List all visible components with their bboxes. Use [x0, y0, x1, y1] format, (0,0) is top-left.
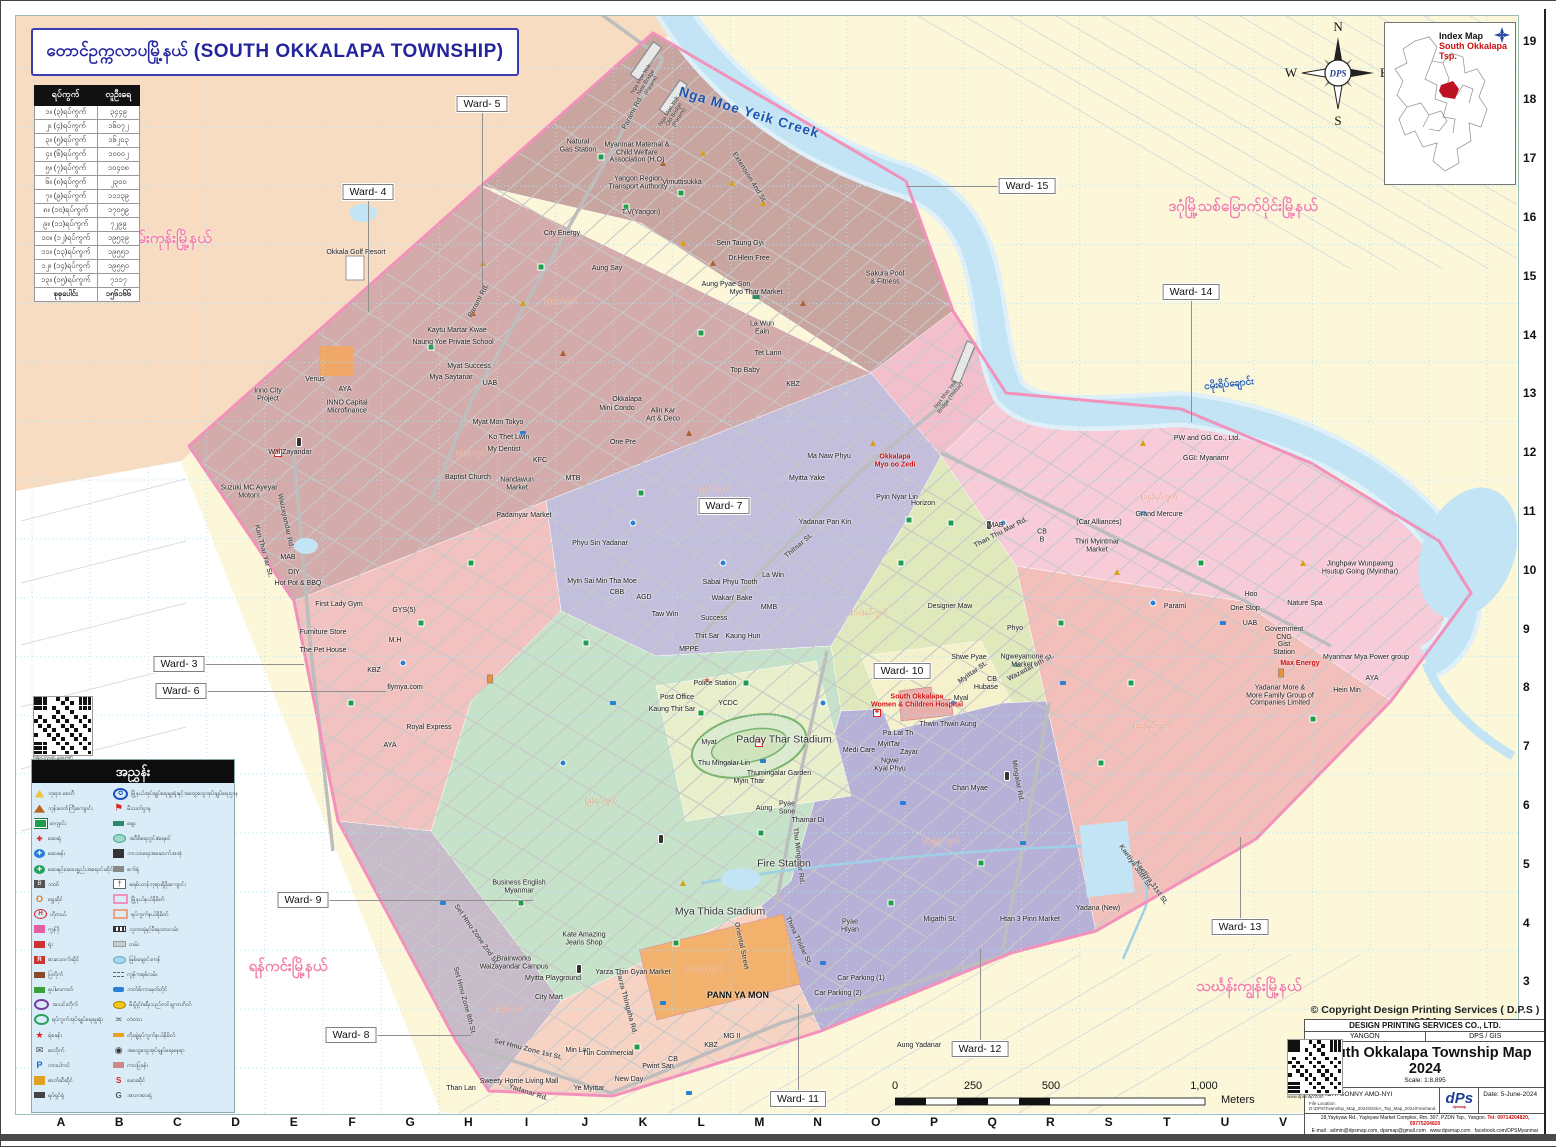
legend-item: Pကားပါကင် — [34, 1058, 113, 1073]
grid-column-label: H — [464, 1115, 473, 1129]
compass-n: N — [1333, 19, 1343, 34]
ward-label: Ward- 6 — [156, 683, 207, 699]
pagoda-marker-icon — [700, 150, 706, 156]
grid-column-label: O — [871, 1115, 880, 1129]
pagoda-marker-icon — [1114, 569, 1120, 575]
legend-item: ဈေး — [113, 816, 238, 831]
legend-item: ✪မြို့နယ်အုပ်ချုပ်ရေးမှူးရုံးနှင့်အထွေထွ… — [113, 786, 238, 801]
ward-leader — [1191, 292, 1192, 422]
market-marker-icon — [1014, 663, 1021, 667]
grid-row-label: 14 — [1523, 328, 1536, 342]
school-marker-icon — [428, 344, 435, 351]
ward-leader — [1240, 837, 1241, 927]
bus-marker-icon — [610, 701, 616, 705]
drug-store-icon: S — [113, 1075, 124, 1085]
car-park-icon: P — [34, 1060, 45, 1070]
legend-item: မြစ်၊ချောင်း၊ကန် — [113, 952, 238, 967]
legend-item: ကွန်ကရစ်လမ်း — [113, 967, 238, 982]
legend-item-label: စက်ရုံ — [127, 865, 139, 874]
school-marker-icon — [743, 680, 750, 687]
legend-item: Gအားကစားရုံ — [113, 1088, 238, 1103]
grid-column-label: L — [698, 1115, 705, 1129]
bank-icon: B — [34, 880, 45, 888]
ward-table-row: ၅။ (၇)ရပ်ကွက်၁၀၄၀၈ — [35, 162, 140, 176]
sheet-bottom-rule — [1, 1134, 1556, 1141]
legend-item-label: ရုပ်ရှင်ရုံ — [48, 1091, 64, 1100]
ward-label: Ward- 11 — [770, 1091, 826, 1107]
legend-item-label: မြစ်၊ချောင်း၊ကန် — [129, 955, 160, 964]
legend-column-left: ဘုရား၊ စေတီဘုန်းတော်ကြီးကျောင်းကျောင်း✚ဆ… — [34, 786, 113, 1103]
scale-tick: 1,000 — [1190, 1080, 1218, 1092]
ward-leader — [303, 900, 533, 901]
condo-icon — [34, 925, 45, 933]
grid-row-label: 8 — [1523, 680, 1530, 694]
legend-item-label: ခရစ်ယာန်ဘုရားရှိခိုးကျောင်း — [129, 880, 185, 889]
legend-item-label: ကျောင်း — [50, 819, 66, 828]
clinic-marker-icon — [720, 560, 727, 567]
legend-item: ကွန်ဒို — [34, 922, 113, 937]
legend-item-label: ရပ်ကွက်အုပ်ချုပ်ရေးမှူးရုံး — [52, 1015, 103, 1024]
legend-item-label: ဟိုတယ် — [50, 910, 66, 919]
fuel-icon — [34, 1076, 45, 1085]
legend-item-label: ရပ်ကွက်နယ်နိမိတ် — [131, 910, 168, 919]
grid-row-label: 7 — [1523, 739, 1530, 753]
index-map: Index Map South OkkalapaTsp. — [1384, 22, 1516, 185]
traffic-light-icon — [113, 1001, 126, 1009]
tl-marker-icon — [577, 965, 581, 973]
restaurant-icon: R — [34, 956, 45, 964]
legend-item-label: ကားပြခန်း — [127, 1061, 148, 1070]
index-map-subtitle: South OkkalapaTsp. — [1439, 42, 1507, 62]
school-marker-icon — [698, 330, 705, 337]
legend-item-label: ဘာသာရေးအဆောက်အအုံ — [127, 849, 181, 858]
grid-row-label: 9 — [1523, 622, 1530, 636]
ward-table-row: ၁၀။ (၁၂)ရပ်ကွက်၁၉၅၃၉ — [35, 232, 140, 246]
bus-stop-icon — [113, 987, 124, 992]
supermarket-icon — [34, 987, 45, 993]
grid-column-label: D — [231, 1115, 240, 1129]
publish-date: Date: 5-June-2024 — [1481, 1089, 1543, 1100]
ward-table-row: ၉။ (၁၁)ရပ်ကွက်၇၂၉၉ — [35, 218, 140, 232]
legend-item: †ခရစ်ယာန်ဘုရားရှိခိုးကျောင်း — [113, 877, 238, 892]
ward-table-total-row: စုစုပေါင်း၁၅၆၁၆၆ — [35, 288, 140, 302]
pagoda-marker-icon — [480, 260, 486, 266]
ward-table-body: ၁။ (၃)ရပ်ကွက်၃၄၄၉၂။ (၄)ရပ်ကွက်၁၆၀၇၂၃။ (၅… — [35, 106, 140, 302]
grid-row-label: 4 — [1523, 916, 1530, 930]
dps-logo: dPsdpsmap — [1446, 1091, 1474, 1110]
grid-column-label: M — [754, 1115, 764, 1129]
sheet-right-rule — [1544, 9, 1546, 1134]
legend-item: ★ရဲစခန်း — [34, 1028, 113, 1043]
legend-item-label: အဝီစိရေတွင်း/ရေစင် — [129, 834, 171, 843]
monastery-icon — [34, 805, 45, 813]
cinema-icon — [34, 1092, 45, 1098]
legend-item-label: အသင်းတိုက် — [52, 1000, 78, 1009]
grid-column-label: A — [57, 1115, 66, 1129]
pagoda-marker-icon — [680, 240, 686, 246]
bus-marker-icon — [520, 431, 526, 435]
legend-item: မီးပွိုင့်/ခရီးသည်တင်ချကားဂိတ် — [113, 997, 238, 1012]
ward-table-row: ၄။ (၆)ရပ်ကွက်၁၀၀၀၂ — [35, 148, 140, 162]
monastery-marker-icon — [660, 160, 666, 166]
ward-leader — [482, 104, 483, 289]
legend-item-label: ဘုန်းတော်ကြီးကျောင်း — [48, 804, 93, 813]
grid-column-label: G — [406, 1115, 415, 1129]
monastery-marker-icon — [710, 260, 716, 266]
legend-item: ဘုန်းတော်ကြီးကျောင်း — [34, 801, 113, 816]
grid-row-label: 13 — [1523, 386, 1536, 400]
clinic-icon: ✚ — [34, 849, 45, 858]
legend-item: ဓာတ်ဆီဆိုင် — [34, 1073, 113, 1088]
hospital-marker-icon: ✚ — [755, 739, 763, 747]
school-marker-icon — [348, 700, 355, 707]
legend-item-label: ကွန်ဒို — [48, 925, 59, 934]
legend-item: မြို့နယ်နယ်နိမိတ် — [113, 892, 238, 907]
ward-label: Ward- 3 — [154, 656, 205, 672]
school-marker-icon — [598, 154, 605, 161]
legend-item: ဘုရား၊ စေတီ — [34, 786, 113, 801]
bus-marker-icon — [686, 1091, 692, 1095]
school-marker-icon — [1098, 760, 1105, 767]
legend-item-label: ဆေးဆိုင် — [127, 1076, 145, 1085]
fuel-marker-icon — [487, 675, 493, 684]
fire-station-icon: ⚑ — [113, 804, 124, 814]
pagoda-marker-icon — [520, 300, 526, 306]
landmark-icon: ◉ — [113, 1045, 124, 1055]
hospital-icon: ✚ — [34, 834, 45, 844]
scale-tick: 0 — [892, 1080, 898, 1092]
legend-item: ရုံး — [34, 937, 113, 952]
school-marker-icon — [673, 940, 680, 947]
index-map-title: Index Map — [1439, 31, 1483, 41]
legend-item-label: ဆေးနှင့်ဆေးပစ္စည်းအရောင်းဆိုင် — [48, 865, 113, 874]
legend-item: ရုပ်ရှင်ရုံ — [34, 1088, 113, 1103]
grid-column-label: C — [173, 1115, 182, 1129]
pagoda-marker-icon — [729, 180, 735, 186]
ward-table-row: ၁၂။ (၁၄)ရပ်ကွက်၁၉၅၅၀ — [35, 260, 140, 274]
legend-item-label: အားကစားရုံ — [127, 1091, 151, 1100]
monastery-marker-icon — [560, 350, 566, 356]
railway-icon — [113, 926, 126, 932]
population-col-header: လူဦးရေ — [97, 86, 140, 106]
legend-item: စူပါမားကတ် — [34, 982, 113, 997]
legend-item: Sဆေးဆိုင် — [113, 1073, 238, 1088]
legend-item-label: ဈေး — [127, 819, 135, 828]
ward-table-row: ၃။ (၅)ရပ်ကွက်၁၆၂၀၃ — [35, 134, 140, 148]
school-marker-icon — [978, 860, 985, 867]
embankment-icon — [113, 1033, 124, 1037]
legend-item: ဘူတာရုံနှင့်မီးရထားလမ်း — [113, 922, 238, 937]
bus-marker-icon — [900, 801, 906, 805]
grid-column-label: T — [1163, 1115, 1170, 1129]
grid-column-label: R — [1046, 1115, 1055, 1129]
legend-item-label: မီးသတ်ဌာန — [127, 804, 151, 813]
clinic-marker-icon — [630, 520, 637, 527]
legend-item-label: ပြတိုက် — [48, 970, 63, 979]
hospital-marker-icon: ✚ — [274, 449, 282, 457]
ward-office-icon — [34, 1014, 49, 1025]
ward-label: Ward- 15 — [999, 178, 1056, 194]
museum-icon — [34, 972, 45, 978]
legend-item-label: ဘုရား၊ စေတီ — [48, 789, 74, 798]
ward-table-row: ၆။ (၈)ရပ်ကွက်၂၃၀၀ — [35, 176, 140, 190]
monastery-marker-icon — [800, 300, 806, 306]
ward-table-row: ၈။ (၁၀)ရပ်ကွက်၁၇၀၅၉ — [35, 204, 140, 218]
legend-item: ရပ်ကွက်အုပ်ချုပ်ရေးမှူးရုံး — [34, 1012, 113, 1027]
legend-item-label: စာတိုက် — [48, 1046, 64, 1055]
legend-column-right: ✪မြို့နယ်အုပ်ချုပ်ရေးမှူးရုံးနှင့်အထွေထွ… — [113, 786, 238, 1103]
religious-icon — [113, 849, 124, 858]
grid-column-label: S — [1105, 1115, 1113, 1129]
tl-marker-icon — [987, 521, 991, 529]
scale-tick: 500 — [1042, 1080, 1060, 1092]
township-boundary-icon — [113, 894, 128, 904]
grid-column-label: Q — [988, 1115, 997, 1129]
pagoda-icon — [34, 790, 45, 798]
legend-item-label: ဆေးရုံ — [48, 834, 61, 843]
legend-item: Oရွှေဆိုင် — [34, 892, 113, 907]
publisher-name: DESIGN PRINTING SERVICES CO., LTD. — [1305, 1020, 1545, 1031]
school-marker-icon — [1310, 716, 1317, 723]
clinic-marker-icon — [1150, 600, 1157, 607]
legend-item-label: မြို့နယ်နယ်နိမိတ် — [131, 895, 164, 904]
clinic-marker-icon — [950, 700, 957, 707]
post-office-icon: ✉ — [34, 1045, 45, 1055]
school-marker-icon — [758, 830, 765, 837]
qr-code-right — [1287, 1039, 1343, 1095]
monastery-marker-icon — [686, 430, 692, 436]
pharmacy-icon: ✚ — [34, 865, 45, 874]
clinic-marker-icon — [560, 760, 567, 767]
legend-item-label: အထွေထွေအုပ်ချုပ်ရေးနေရာ — [127, 1046, 185, 1055]
grid-row-label: 3 — [1523, 974, 1530, 988]
gym-icon: G — [113, 1090, 124, 1100]
bus-marker-icon — [440, 901, 446, 905]
tl-marker-icon — [1005, 772, 1009, 780]
school-marker-icon — [698, 710, 705, 717]
grid-row-label: 15 — [1523, 269, 1536, 283]
index-map-highlight — [1439, 81, 1459, 99]
market-marker-icon — [753, 295, 760, 299]
legend-title: အညွှန်း — [32, 760, 234, 783]
legend-item: ဘာသာရေးအဆောက်အအုံ — [113, 846, 238, 861]
legend-item-label: ဓာတ်ဆီဆိုင် — [48, 1076, 73, 1085]
publisher-contact: 18,Yaykyaw Rd., Yaykyaw Market Complex, … — [1305, 1114, 1545, 1135]
ward-leader — [980, 949, 981, 1049]
market-icon — [113, 821, 124, 826]
grid-row-label: 18 — [1523, 92, 1536, 106]
school-marker-icon — [634, 1044, 641, 1051]
legend-item: ကားပြခန်း — [113, 1058, 238, 1073]
car-showroom-icon — [113, 1062, 124, 1068]
pagoda-marker-icon — [680, 880, 686, 886]
bus-marker-icon — [1220, 621, 1226, 625]
legend-item: ကျောင်း — [34, 816, 113, 831]
pagoda-marker-icon — [1300, 560, 1306, 566]
school-marker-icon — [583, 640, 590, 647]
pagoda-marker-icon — [870, 440, 876, 446]
file-location: File Location: D:\DPS\Township_Map_2024\… — [1307, 1100, 1437, 1112]
legend-item: အဝီစိရေတွင်း/ရေစင် — [113, 831, 238, 846]
legend-item-label: တံတား — [127, 1015, 142, 1024]
bridge-icon: ≍ — [113, 1015, 124, 1025]
ward-table-row: ၇။ (၉)ရပ်ကွက်၁၁၁၃၉ — [35, 190, 140, 204]
ward-label: Ward- 4 — [343, 184, 394, 200]
legend-item: ≍တံတား — [113, 1012, 238, 1027]
bus-marker-icon — [760, 759, 766, 763]
dirt-road-icon — [113, 972, 124, 977]
school-marker-icon — [623, 204, 630, 211]
school-marker-icon — [638, 490, 645, 497]
grid-row-label: 16 — [1523, 210, 1536, 224]
ward-boundary-icon — [113, 909, 128, 919]
map-title-box: တောင်ဥက္ကလာပမြို့နယ် (SOUTH OKKALAPA TOW… — [31, 28, 519, 76]
legend-item: Rစားသောက်ဆိုင် — [34, 952, 113, 967]
grid-column-label: I — [525, 1115, 528, 1129]
legend-item: ပြတိုက် — [34, 967, 113, 982]
pagoda-marker-icon — [1140, 440, 1146, 446]
grid-row-label: 19 — [1523, 34, 1536, 48]
ward-table-row: ၁၃။ (၁၅)ရပ်ကွက်၇၁၁၇ — [35, 274, 140, 288]
school-marker-icon — [538, 264, 545, 271]
ward-leader — [368, 192, 369, 312]
map-sheet: DPS N S W E တောင်ဥက္ကလာပမြို့နယ် (SOUTH … — [0, 0, 1556, 1147]
legend-item: Hဟိုတယ် — [34, 907, 113, 922]
legend-item-label: ဘူတာရုံနှင့်မီးရထားလမ်း — [129, 925, 178, 934]
grid-column-label: E — [290, 1115, 298, 1129]
ward-leader — [798, 1004, 799, 1099]
water-tower-icon — [113, 834, 126, 843]
legend-item: ✚ဆေးနှင့်ဆေးပစ္စည်းအရောင်းဆိုင် — [34, 861, 113, 876]
water-body-icon — [113, 956, 126, 964]
grid-column-label: K — [639, 1115, 648, 1129]
police-icon: ★ — [34, 1030, 45, 1040]
tl-marker-icon — [297, 438, 301, 446]
legend-item: လမ်း — [113, 937, 238, 952]
scale-units: Meters — [1221, 1094, 1255, 1106]
ward-table-row: ၁၁။ (၁၃)ရပ်ကွက်၁၉၅၅၁ — [35, 246, 140, 260]
school-marker-icon — [468, 560, 475, 567]
legend-item: ✚ဆေးခန်း — [34, 846, 113, 861]
scale-bar: 02505001,000 Meters — [871, 1076, 1271, 1116]
gold-shop-icon: O — [34, 894, 45, 904]
legend-item-label: ဘဏ် — [48, 880, 59, 889]
ward-population-table: ရပ်ကွက် လူဦးရေ ၁။ (၃)ရပ်ကွက်၃၄၄၉၂။ (၄)ရပ… — [34, 85, 140, 302]
clinic-marker-icon — [820, 700, 827, 707]
school-marker-icon — [1198, 560, 1205, 567]
legend-item-label: မီးပွိုင့်/ခရီးသည်တင်ချကားဂိတ် — [129, 1000, 191, 1009]
school-marker-icon — [1058, 620, 1065, 627]
township-office-icon: ✪ — [113, 788, 128, 800]
legend-item-label: ကွန်ကရစ်လမ်း — [127, 970, 157, 979]
ward-label: Ward- 10 — [874, 663, 931, 679]
compass-center-label: DPS — [1328, 69, 1346, 79]
bus-marker-icon — [820, 961, 826, 965]
legend-item-label: ဘတ်စ်ကားမှတ်တိုင် — [127, 985, 167, 994]
road-icon — [113, 941, 126, 947]
legend-item: အသင်းတိုက် — [34, 997, 113, 1012]
tl-marker-icon — [659, 835, 663, 843]
grid-row-label: 5 — [1523, 857, 1530, 871]
publisher-dept: DPS / GIS — [1425, 1032, 1546, 1041]
ward-table-row: ၁။ (၃)ရပ်ကွက်၃၄၄၉ — [35, 106, 140, 120]
fuel-marker-icon — [1278, 669, 1284, 678]
map-title-english: (SOUTH OKKALAPA TOWNSHIP) — [194, 41, 504, 63]
school-marker-icon — [1128, 680, 1135, 687]
grid-row-label: 17 — [1523, 151, 1536, 165]
legend-item-label: စားသောက်ဆိုင် — [48, 955, 79, 964]
qr-left-caption: https://ycdc.gov.mm — [33, 755, 73, 760]
scale-tick: 250 — [964, 1080, 982, 1092]
grid-column-label: B — [115, 1115, 124, 1129]
ward-label: Ward- 13 — [1212, 919, 1269, 935]
church-icon: † — [113, 879, 126, 889]
office-icon — [34, 941, 45, 948]
monastery-marker-icon — [470, 310, 476, 316]
school-marker-icon — [888, 900, 895, 907]
association-icon — [34, 999, 49, 1010]
compass-s: S — [1334, 113, 1341, 128]
school-icon — [34, 819, 47, 828]
grid-column-label: F — [348, 1115, 355, 1129]
grid-row-label: 6 — [1523, 798, 1530, 812]
legend-item: ဘတ်စ်ကားမှတ်တိုင် — [113, 982, 238, 997]
legend-item: Bဘဏ် — [34, 877, 113, 892]
legend-item-label: လမ်း — [129, 940, 139, 949]
grid-column-label: P — [930, 1115, 938, 1129]
ward-label: Ward- 12 — [952, 1041, 1009, 1057]
clinic-marker-icon — [400, 660, 407, 667]
legend-item-label: ကားပါကင် — [48, 1061, 70, 1070]
legend-item: တိုးချဲ့ရပ်ကွက်နယ်နိမိတ် — [113, 1028, 238, 1043]
legend-item: စက်ရုံ — [113, 861, 238, 876]
factory-icon — [113, 866, 124, 872]
legend-item: ⚑မီးသတ်ဌာန — [113, 801, 238, 816]
legend-item-label: တိုးချဲ့ရပ်ကွက်နယ်နိမိတ် — [127, 1031, 175, 1040]
school-marker-icon — [898, 560, 905, 567]
qr-code-left — [33, 696, 93, 756]
legend-item: ရပ်ကွက်နယ်နိမိတ် — [113, 907, 238, 922]
qr-right-caption: www.dpsmap.com — [1287, 1094, 1324, 1099]
ward-leader — [181, 691, 386, 692]
police-marker-icon: ★ — [703, 677, 710, 685]
school-marker-icon — [906, 517, 913, 524]
ward-label: Ward- 8 — [326, 1027, 377, 1043]
school-marker-icon — [418, 620, 425, 627]
legend-item-label: မြို့နယ်အုပ်ချုပ်ရေးမှူးရုံးနှင့်အထွေထွေ… — [131, 789, 238, 798]
grid-row-label: 11 — [1523, 504, 1536, 518]
grid-row-label: 10 — [1523, 563, 1536, 577]
hotel-icon: H — [34, 909, 47, 919]
grid-column-label: J — [581, 1115, 588, 1129]
grid-column-label: N — [813, 1115, 822, 1129]
ward-col-header: ရပ်ကွက် — [35, 86, 98, 106]
legend-item-label: ဆေးခန်း — [48, 849, 65, 858]
map-title-burmese: တောင်ဥက္ကလာပမြို့နယ် — [46, 40, 187, 65]
compass-w: W — [1285, 65, 1298, 80]
ward-label: Ward- 7 — [699, 498, 750, 514]
school-marker-icon — [948, 520, 955, 527]
grid-column-label: U — [1221, 1115, 1230, 1129]
hospital-marker-icon: ✚ — [873, 709, 881, 717]
bus-marker-icon — [1140, 511, 1146, 515]
ward-label: Ward- 9 — [278, 892, 329, 908]
ward-table-row: ၂။ (၄)ရပ်ကွက်၁၆၀၇၂ — [35, 120, 140, 134]
ward-label: Ward- 14 — [1163, 284, 1220, 300]
legend: အညွှန်း ဘုရား၊ စေတီဘုန်းတော်ကြီးကျောင်းက… — [31, 759, 235, 1113]
grid-column-label: V — [1279, 1115, 1287, 1129]
legend-item: ✉စာတိုက် — [34, 1043, 113, 1058]
